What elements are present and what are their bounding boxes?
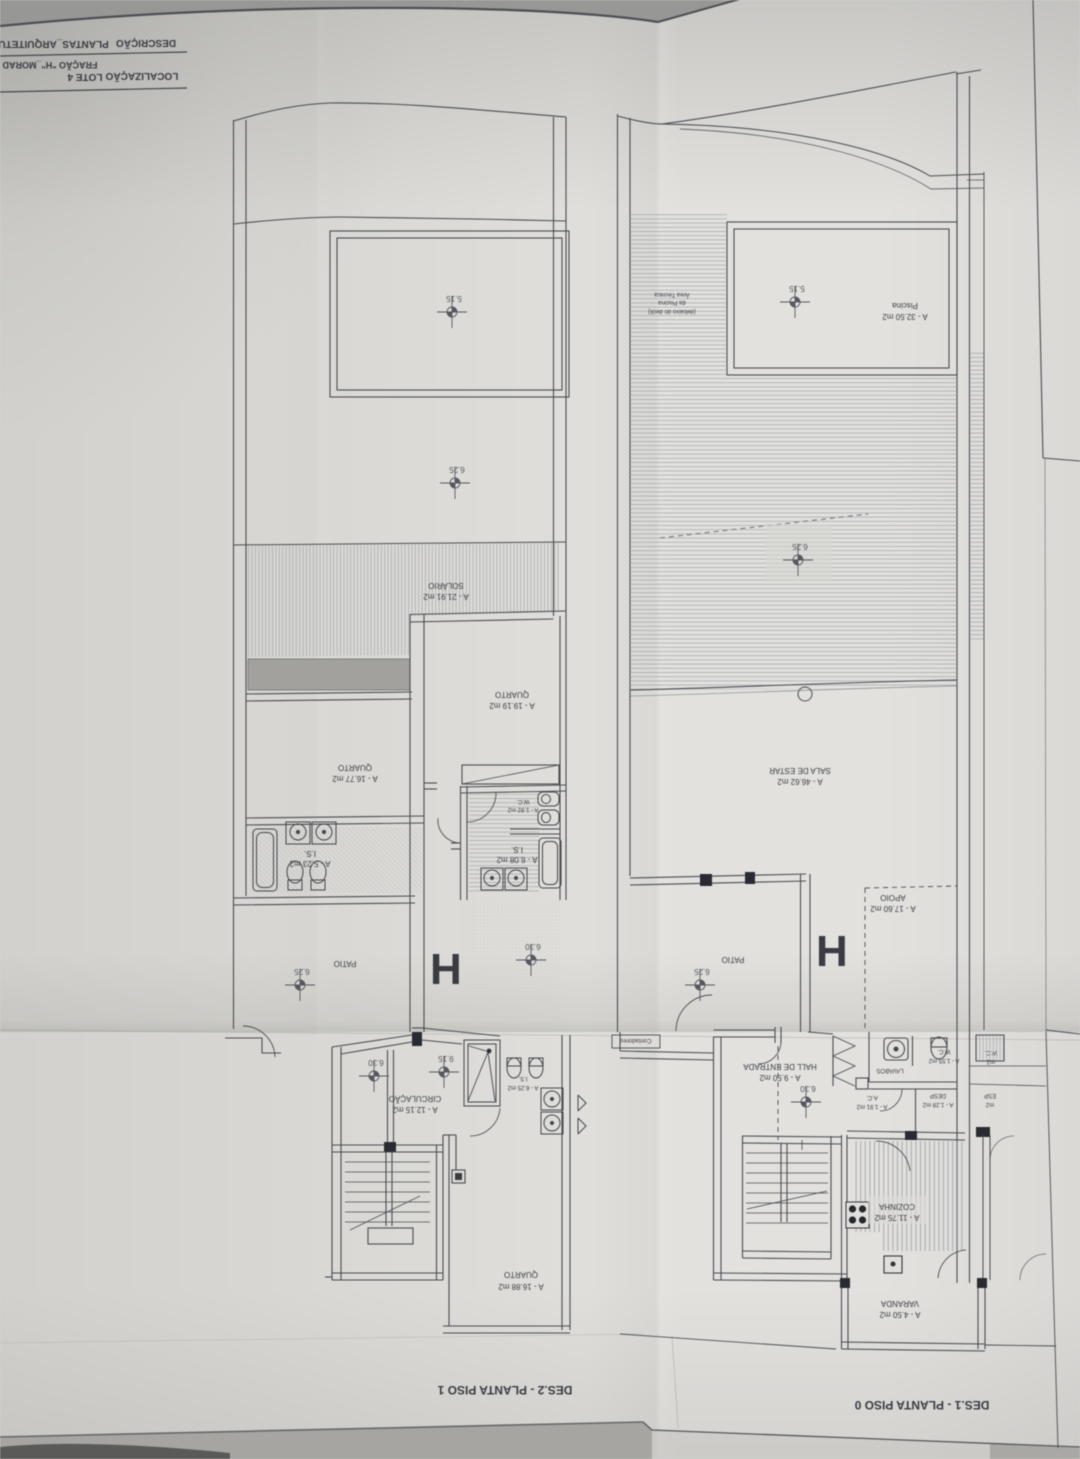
svg-text:A - 16.77 m2: A - 16.77 m2 (332, 774, 378, 783)
svg-text:5.15: 5.15 (789, 284, 805, 293)
svg-text:A.C.: A.C. (866, 1094, 878, 1100)
svg-text:6.25: 6.25 (694, 967, 710, 976)
svg-text:6.25: 6.25 (294, 967, 310, 976)
svg-text:PLANTAS_ARQUITETUR: PLANTAS_ARQUITETUR (0, 38, 109, 49)
svg-text:DESCRIÇÃO: DESCRIÇÃO (116, 37, 176, 50)
svg-text:SALA DE ESTAR: SALA DE ESTAR (769, 766, 831, 775)
svg-text:(debaixo do deck): (debaixo do deck) (648, 308, 696, 314)
svg-text:A - 1.92 m2: A - 1.92 m2 (507, 806, 538, 812)
svg-text:PATIO: PATIO (334, 959, 357, 968)
svg-text:da Piscina: da Piscina (657, 299, 685, 305)
svg-text:I.S.: I.S. (511, 845, 523, 854)
svg-text:FRAÇÃO "H"_MORAD: FRAÇÃO "H"_MORAD (2, 60, 98, 70)
svg-text:COZINHA: COZINHA (878, 1202, 915, 1211)
svg-text:PATIO: PATIO (722, 955, 745, 964)
svg-text:A - 16.88 m2: A - 16.88 m2 (498, 1282, 544, 1291)
svg-text:9.15: 9.15 (438, 1054, 454, 1063)
svg-text:A - 32.50 m2: A - 32.50 m2 (882, 312, 928, 321)
svg-text:I.S.: I.S. (518, 1075, 527, 1081)
svg-text:QUARTO: QUARTO (504, 1270, 538, 1279)
svg-text:A - 19.19 m2: A - 19.19 m2 (489, 701, 535, 710)
svg-text:6.25: 6.25 (449, 465, 465, 474)
svg-text:6.30: 6.30 (525, 942, 541, 951)
svg-text:Contadores: Contadores (620, 1037, 651, 1043)
svg-text:A - 9.50 m2: A - 9.50 m2 (759, 1073, 800, 1082)
svg-text:SOLÁRIO: SOLÁRIO (428, 581, 464, 590)
svg-text:A - 21.91 m2: A - 21.91 m2 (423, 592, 469, 601)
svg-text:A - 6.08 m2: A - 6.08 m2 (496, 855, 537, 864)
svg-text:H: H (430, 945, 462, 994)
svg-text:A - 1.91 m2: A - 1.91 m2 (856, 1103, 887, 1109)
svg-text:m2: m2 (985, 1101, 994, 1107)
svg-text:DES.2 - PLANTA PISO 1: DES.2 - PLANTA PISO 1 (437, 1383, 572, 1397)
svg-text:W.C.: W.C. (937, 1048, 950, 1054)
svg-text:DESP: DESP (930, 1092, 946, 1098)
svg-text:6.25: 6.25 (792, 542, 808, 551)
svg-text:6.30: 6.30 (800, 1084, 816, 1093)
svg-text:A - 11.75 m2: A - 11.75 m2 (874, 1213, 919, 1222)
svg-text:QUARTO: QUARTO (495, 690, 529, 699)
svg-text:VARANDA: VARANDA (880, 1299, 919, 1308)
svg-text:A - 12.15 m2: A - 12.15 m2 (392, 1105, 438, 1114)
svg-text:LOTE 4: LOTE 4 (67, 71, 102, 82)
svg-text:A - 1.55 m2: A - 1.55 m2 (928, 1057, 959, 1063)
svg-text:I.S.: I.S. (304, 849, 316, 858)
svg-text:LAVABOS: LAVABOS (876, 1067, 903, 1073)
svg-text:CIRCULAÇÃO: CIRCULAÇÃO (389, 1094, 441, 1103)
svg-text:APOIO: APOIO (880, 893, 905, 902)
svg-text:W.C.: W.C. (516, 798, 529, 804)
svg-text:5.15: 5.15 (446, 294, 462, 303)
svg-text:6.30: 6.30 (368, 1058, 384, 1067)
svg-text:A - 46.62 m2: A - 46.62 m2 (777, 777, 823, 786)
svg-text:HALL DE ENTRADA: HALL DE ENTRADA (743, 1062, 817, 1071)
svg-text:Piscina: Piscina (892, 301, 918, 310)
svg-text:DES.1 - PLANTA PISO 0: DES.1 - PLANTA PISO 0 (854, 1398, 989, 1412)
svg-text:A - 4.50 m2: A - 4.50 m2 (879, 1310, 920, 1319)
svg-text:ESP: ESP (984, 1092, 996, 1098)
svg-text:A - 1.28 m2: A - 1.28 m2 (922, 1101, 953, 1107)
svg-text:H: H (816, 927, 848, 976)
svg-text:A - 5.23 m2: A - 5.23 m2 (289, 859, 330, 868)
svg-text:LOCALIZAÇÃO: LOCALIZAÇÃO (105, 70, 178, 83)
svg-text:QUARTO: QUARTO (338, 763, 372, 772)
svg-text:A - 17.60 m2: A - 17.60 m2 (870, 904, 916, 913)
svg-text:Área Técnica: Área Técnica (654, 291, 690, 298)
svg-text:A - 6.25 m2: A - 6.25 m2 (507, 1084, 538, 1090)
